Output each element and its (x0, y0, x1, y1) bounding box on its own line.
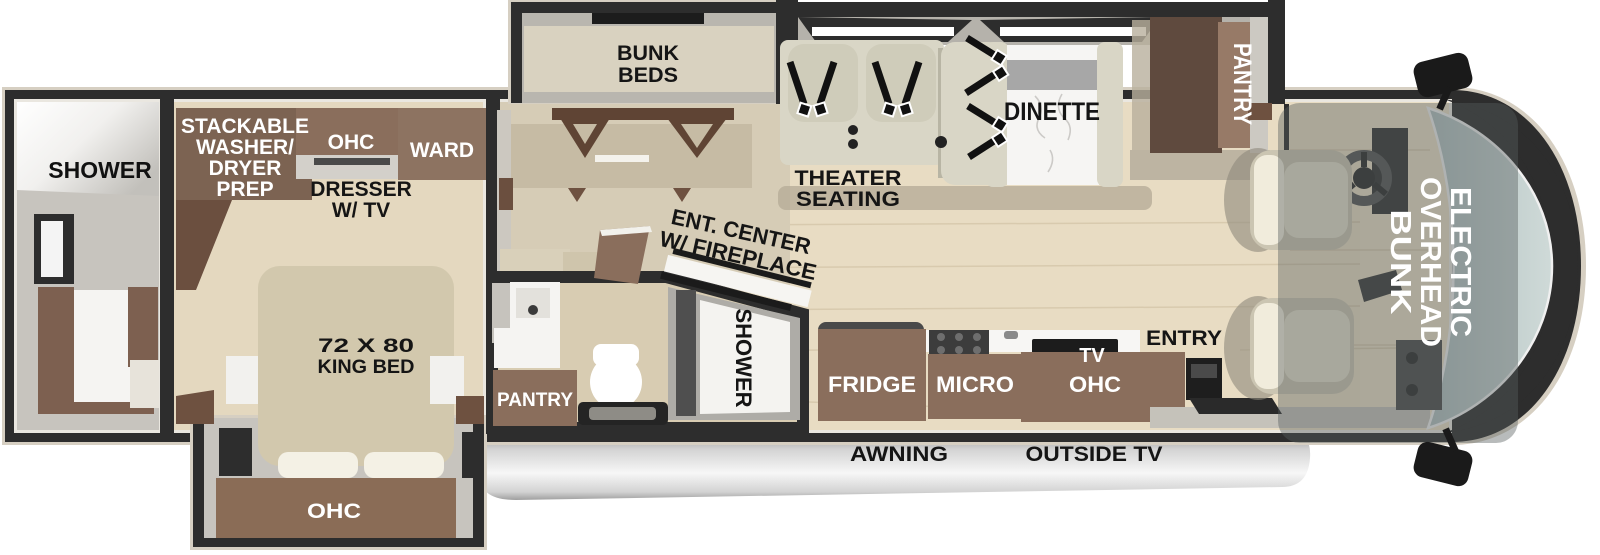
svg-text:WARD: WARD (410, 139, 474, 162)
svg-text:DRYER: DRYER (209, 157, 282, 180)
svg-text:WASHER/: WASHER/ (196, 136, 294, 159)
svg-text:PANTRY: PANTRY (1228, 43, 1256, 125)
svg-text:FRIDGE: FRIDGE (828, 372, 916, 397)
svg-text:SEATING: SEATING (796, 188, 900, 211)
svg-text:OHC: OHC (307, 500, 361, 523)
svg-text:MICRO: MICRO (936, 372, 1014, 397)
svg-text:W/ TV: W/ TV (332, 199, 390, 222)
svg-text:72 X 80: 72 X 80 (318, 336, 414, 357)
svg-text:BEDS: BEDS (618, 64, 678, 87)
svg-text:THEATER: THEATER (795, 167, 902, 190)
svg-text:PREP: PREP (216, 178, 273, 201)
svg-text:PANTRY: PANTRY (497, 390, 573, 411)
svg-text:BUNK: BUNK (617, 42, 679, 65)
svg-text:BUNK: BUNK (1384, 210, 1416, 315)
svg-text:ENTRY: ENTRY (1146, 327, 1222, 350)
svg-text:OHC: OHC (328, 131, 375, 154)
svg-text:OHC: OHC (1069, 372, 1121, 397)
svg-text:OVERHEAD: OVERHEAD (1414, 177, 1446, 347)
svg-text:TV: TV (1079, 345, 1105, 367)
svg-text:SHOWER: SHOWER (731, 309, 756, 408)
svg-text:DINETTE: DINETTE (1004, 98, 1100, 126)
svg-text:AWNING: AWNING (850, 443, 948, 466)
svg-text:DRESSER: DRESSER (310, 178, 412, 201)
svg-text:OUTSIDE TV: OUTSIDE TV (1026, 443, 1163, 466)
svg-text:KING BED: KING BED (318, 357, 415, 378)
svg-text:ELECTRIC: ELECTRIC (1444, 187, 1476, 337)
svg-text:SHOWER: SHOWER (48, 157, 152, 183)
svg-text:STACKABLE: STACKABLE (181, 115, 309, 138)
